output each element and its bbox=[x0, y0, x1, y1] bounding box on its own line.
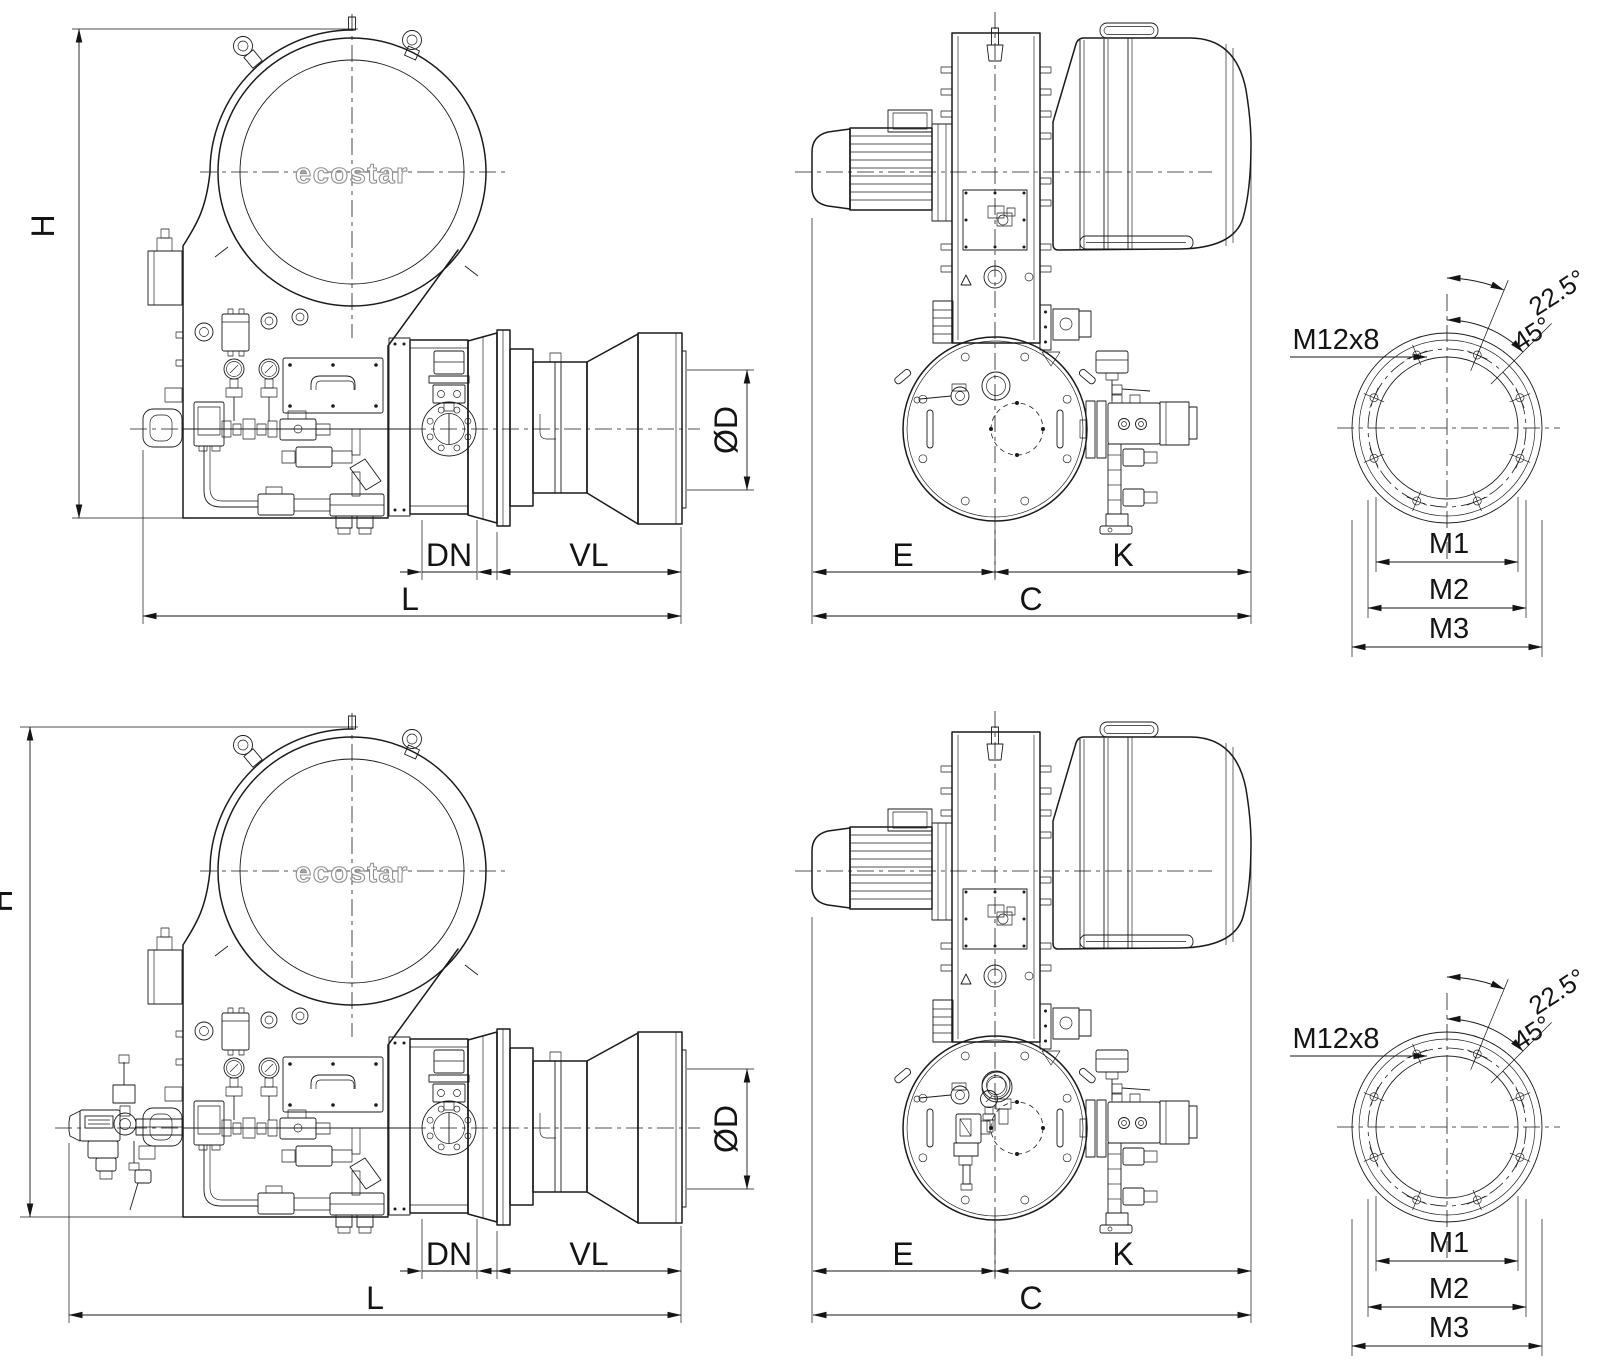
dim-k: K bbox=[1112, 1236, 1133, 1272]
dim-e: E bbox=[892, 537, 913, 573]
dim-l: L bbox=[401, 581, 419, 617]
dim-k: K bbox=[1112, 537, 1133, 573]
row-dual-fuel-version: H ØD DN VL L E K C bbox=[0, 711, 1591, 1356]
dimensions-bottom-row: H ØD DN VL L E K C bbox=[0, 727, 1251, 1323]
oil-filter bbox=[88, 1141, 118, 1158]
drawing-page: ecostar bbox=[0, 0, 1600, 1370]
dim-od: ØD bbox=[708, 406, 744, 454]
dim-dn: DN bbox=[426, 1236, 472, 1272]
dim-vl: VL bbox=[569, 537, 608, 573]
technical-drawing-canvas: ecostar bbox=[0, 0, 1600, 1370]
dim-c: C bbox=[1019, 581, 1042, 617]
row-gas-version: H ØD DN VL L E K C bbox=[25, 12, 1591, 657]
dim-e: E bbox=[892, 1236, 913, 1272]
oil-ball-valve bbox=[135, 1170, 151, 1183]
dim-c: C bbox=[1019, 1280, 1042, 1316]
oil-pump-assembly bbox=[55, 1055, 183, 1210]
dim-dn: DN bbox=[426, 537, 472, 573]
dim-vl: VL bbox=[569, 1236, 608, 1272]
dim-od: ØD bbox=[708, 1105, 744, 1153]
dim-l: L bbox=[366, 1280, 384, 1316]
dimensions-top-row: H ØD DN VL L E K C bbox=[25, 29, 1251, 624]
dim-h: H bbox=[0, 889, 19, 912]
dim-h: H bbox=[25, 214, 61, 237]
